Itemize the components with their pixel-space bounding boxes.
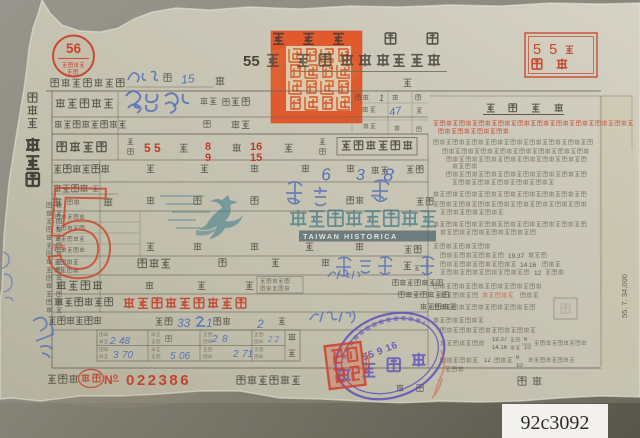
svg-text:5 5: 5 5 [533, 42, 559, 58]
svg-text:19.37: 19.37 [492, 337, 508, 343]
svg-text:10: 10 [524, 345, 531, 351]
svg-text:5: 5 [43, 160, 117, 305]
svg-text:3: 3 [356, 167, 365, 184]
svg-text:10: 10 [516, 363, 523, 369]
svg-text:2 2: 2 2 [267, 335, 280, 344]
svg-text:1: 1 [206, 316, 213, 330]
svg-text:70: 70 [122, 350, 134, 361]
svg-text:56: 56 [66, 41, 82, 56]
svg-text:92c3092: 92c3092 [521, 412, 590, 434]
svg-text:TAIWAN HISTORICA: TAIWAN HISTORICA [303, 232, 398, 241]
svg-text:15: 15 [250, 152, 262, 164]
svg-text:2: 2 [232, 349, 239, 360]
svg-text:48: 48 [119, 336, 131, 347]
svg-text:12: 12 [484, 358, 491, 364]
svg-text:8: 8 [222, 334, 228, 345]
svg-text:5 5: 5 5 [144, 141, 161, 155]
svg-text:9: 9 [205, 152, 211, 164]
svg-text:3: 3 [113, 350, 119, 361]
svg-text:71: 71 [242, 349, 253, 360]
svg-text:1: 1 [379, 93, 384, 103]
svg-text:12: 12 [534, 270, 542, 277]
svg-text:5: 5 [170, 351, 176, 362]
svg-text:14.16: 14.16 [492, 345, 508, 351]
svg-text:2: 2 [211, 334, 218, 345]
svg-text:14.16: 14.16 [520, 262, 537, 269]
svg-text:06: 06 [179, 351, 191, 362]
svg-text:33: 33 [177, 316, 191, 330]
svg-text:8: 8 [383, 164, 395, 185]
svg-text:15: 15 [180, 71, 195, 86]
svg-text:2: 2 [109, 336, 116, 347]
svg-text:2: 2 [256, 317, 264, 331]
svg-text:19.37: 19.37 [508, 253, 525, 260]
